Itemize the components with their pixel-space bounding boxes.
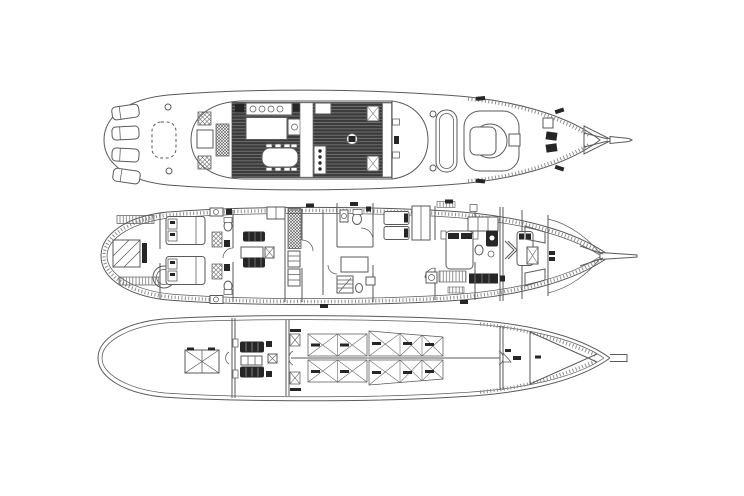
cleat (555, 108, 565, 115)
tank-label-mark (372, 371, 381, 374)
roof-hatch (470, 205, 477, 212)
tank-label-mark (290, 329, 301, 332)
staircase (216, 124, 229, 156)
coffee-table (241, 247, 263, 258)
burner (250, 106, 256, 112)
companionway (300, 103, 313, 177)
tank-label-mark (425, 370, 434, 373)
pillow (526, 234, 531, 240)
cabinet (366, 277, 375, 285)
slatted-seat (448, 287, 464, 293)
lower-deck-plan (98, 316, 627, 401)
pantry-unit (314, 146, 326, 174)
generator (268, 354, 277, 363)
tender-pod (464, 111, 520, 171)
gearbox (241, 356, 262, 365)
shelves (288, 269, 300, 286)
main-deck-plan (101, 200, 637, 309)
tank-label-mark (340, 344, 349, 347)
locker (142, 243, 147, 263)
bowsprit (600, 253, 637, 260)
staircase (288, 209, 301, 249)
hatch-grating (265, 247, 274, 258)
tank-label-mark (425, 343, 434, 346)
hatch-grating (527, 247, 538, 264)
tank-label-mark (311, 370, 320, 373)
sun-deck-plan (104, 90, 632, 190)
pillow (519, 234, 524, 240)
nightstand (473, 231, 478, 239)
appliance (235, 104, 244, 113)
settee (341, 257, 368, 272)
vanity (426, 272, 437, 283)
counter (315, 103, 331, 114)
pillow (461, 233, 472, 239)
bow-stub (610, 355, 627, 362)
tank-label-mark (340, 370, 349, 373)
tank-label-mark (290, 388, 301, 391)
tank-label-mark (311, 344, 320, 347)
twin-cabin (384, 206, 430, 240)
sofa (243, 232, 265, 242)
hatch-grating (198, 156, 211, 169)
side-passage (383, 103, 392, 177)
stair-hatch (367, 156, 379, 171)
bench-seat (117, 216, 154, 224)
shelves (288, 251, 300, 267)
tank-label-mark (403, 371, 412, 374)
burner (268, 106, 274, 112)
double-cabin-aft-2 (166, 257, 205, 285)
pillow (448, 233, 459, 239)
closet (468, 217, 498, 231)
staircase-block (288, 209, 301, 287)
yacht-deck-plans-drawing (0, 0, 744, 496)
hatch-grating (198, 112, 211, 125)
pillow (404, 229, 408, 238)
burner (259, 106, 265, 112)
slatted-counter (439, 271, 466, 282)
tank-label-mark (403, 342, 412, 345)
double-cabin-aft-1 (166, 217, 205, 245)
bowsprit (610, 137, 632, 144)
sink-unit (288, 119, 301, 135)
cleat (555, 165, 565, 172)
shower (212, 264, 222, 279)
tank-label-mark (372, 342, 381, 345)
galley-island (246, 118, 287, 140)
nightstand (441, 231, 446, 239)
deck-box (543, 118, 553, 128)
dining-table-with-chairs (262, 144, 298, 171)
burner (277, 106, 283, 112)
cabinet (197, 130, 213, 148)
pillow (404, 214, 408, 223)
dresser (469, 274, 498, 284)
mast-base (347, 134, 358, 145)
blueprint-canvas (0, 0, 744, 496)
stair-hatch (367, 106, 379, 121)
sofa (243, 258, 265, 268)
shower (212, 232, 222, 247)
